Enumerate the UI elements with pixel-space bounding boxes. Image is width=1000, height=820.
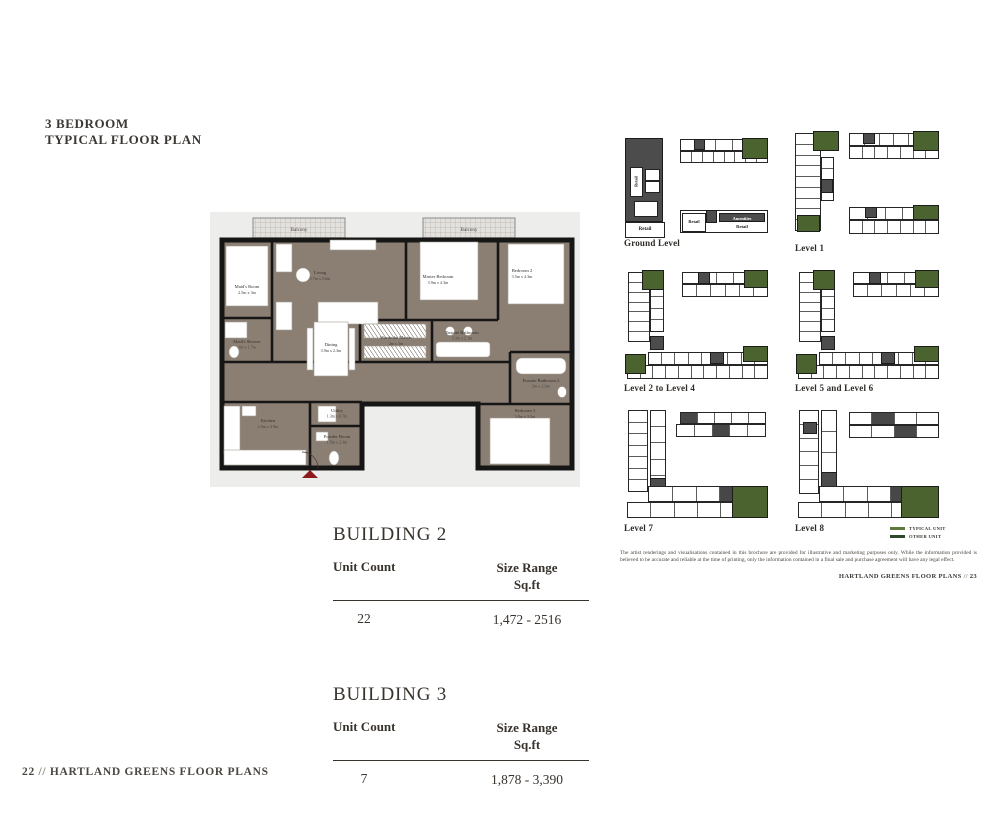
unit-cell: [683, 285, 697, 296]
unit-cell: [717, 366, 730, 378]
unit-cell: [800, 312, 820, 322]
unit-cell: [886, 208, 904, 219]
unit-cell: [901, 221, 914, 233]
ground-retail-label-1: Retail: [626, 227, 664, 232]
ground-tower-retail-label: Retail: [634, 170, 639, 194]
building2-rule: [333, 600, 589, 601]
unit-cell: [820, 353, 833, 364]
legend-row-other: OTHER UNIT: [890, 534, 946, 539]
level-label-5-6: Level 5 and Level 6: [795, 383, 873, 393]
unit-cell: [822, 320, 834, 331]
building2-unit-count-value: 22: [333, 611, 395, 628]
unit-cell: [822, 158, 833, 169]
unit-cell: [651, 411, 665, 427]
ground-tower: Retail: [625, 138, 663, 222]
building3-unit-count-value: 7: [333, 771, 395, 788]
building3-rule: [333, 760, 589, 761]
unit-cell: [629, 322, 649, 332]
unit-cell: [651, 297, 663, 309]
unit-cell: [800, 293, 820, 303]
ground-amenities-label: Amenities: [720, 216, 764, 221]
unit-cell: [882, 285, 896, 296]
unit-cell: [651, 309, 663, 321]
unit-cell: [711, 285, 725, 296]
unit-cell: [800, 480, 818, 493]
unit-cell: [822, 309, 834, 321]
unit-cell: [629, 457, 647, 469]
unit-cell: [717, 273, 734, 283]
unit-cell: [872, 426, 894, 437]
unit-cell: [822, 297, 834, 309]
unit-cell: [800, 322, 820, 332]
footer-text: HARTLAND GREENS FLOOR PLANS: [50, 766, 269, 778]
unit-cell: [681, 413, 698, 423]
ground-retail-label-2: Retail: [683, 219, 705, 224]
unit-cell: [714, 152, 725, 162]
level-label-8: Level 8: [795, 523, 824, 533]
building3-size-unit-label: Sq.ft: [514, 737, 540, 752]
building3-size-range-label: Size Range: [496, 720, 557, 735]
unit-cell: [649, 487, 673, 501]
level-diagram-2-4: Level 2 to Level 4: [622, 268, 774, 394]
unit-cell: [697, 487, 721, 501]
unit-cell: [894, 134, 909, 145]
unit-cell: [863, 147, 876, 158]
ground-retail-label-3: Retail: [719, 224, 765, 229]
level-label-2-4: Level 2 to Level 4: [624, 383, 695, 393]
unit-cell: [692, 366, 705, 378]
unit-cell: [850, 147, 863, 158]
unit-cell: [716, 140, 733, 150]
unit-cell: [888, 366, 901, 378]
unit-cell: [629, 480, 647, 491]
unit-cell: [698, 503, 721, 517]
unit-cell: [846, 503, 869, 517]
unit-cell: [629, 434, 647, 446]
unit-cell: [868, 487, 892, 501]
unit-cell: [748, 425, 765, 436]
unit-cell: [820, 487, 844, 501]
unit-cell: [800, 439, 818, 453]
unit-cell: [875, 221, 888, 233]
building3-title: BUILDING 3: [333, 684, 589, 706]
room-label-bedroom2: Bedroom 23.5m x 4.3m: [512, 268, 534, 279]
unit-cell: [649, 353, 662, 364]
unit-cell: [629, 423, 647, 435]
unit-cell: [854, 285, 868, 296]
unit-cell: [850, 366, 863, 378]
building3-size-range-value: 1,878 - 3,390: [465, 771, 589, 788]
unit-cell: [837, 366, 850, 378]
unit-cell: [800, 332, 820, 341]
unit-cell: [629, 293, 649, 303]
level-diagram-5-6: Level 5 and Level 6: [793, 268, 945, 394]
unit-cell: [850, 413, 872, 424]
unit-cell: [869, 503, 892, 517]
room-label-powder: Powder Room1.5m x 2.3m: [324, 434, 351, 445]
page-title: 3 BEDROOM TYPICAL FLOOR PLAN: [45, 116, 202, 148]
unit-cell: [673, 487, 697, 501]
legend-swatch-typical: [890, 527, 905, 530]
room-label-bedroom3: Bedroom 33.8m x 3.5m: [515, 408, 537, 419]
unit-cell: [860, 353, 873, 364]
building2-unit-count-label: Unit Count: [333, 559, 396, 593]
unit-cell: [917, 413, 938, 424]
unit-cell: [844, 487, 868, 501]
unit-cell: [675, 353, 688, 364]
unit-cell: [629, 332, 649, 341]
building2-size-unit-label: Sq.ft: [514, 577, 540, 592]
building2-size-range-value: 1,472 - 2516: [465, 611, 589, 628]
unit-cell: [822, 503, 845, 517]
unit-cell: [730, 425, 748, 436]
level-diagram-1: Level 1: [793, 131, 945, 253]
unit-cell: [651, 427, 665, 443]
page-ref-right-num: 23: [970, 573, 977, 580]
unit-cell: [863, 221, 876, 233]
unit-cell: [713, 425, 731, 436]
unit-cell: [653, 366, 666, 378]
legend-row-typical: TYPICAL UNIT: [890, 526, 946, 531]
unit-cell: [897, 285, 911, 296]
unit-cell: [666, 366, 679, 378]
unit-cell: [800, 466, 818, 480]
unit-cell: [833, 353, 846, 364]
unit-cell: [677, 425, 695, 436]
building3-unit-count-label: Unit Count: [333, 719, 396, 753]
unit-cell: [692, 152, 703, 162]
unit-cell: [629, 469, 647, 481]
unit-cell: [651, 460, 665, 476]
ground-retail-strip: Retail Amenities Retail: [680, 210, 768, 233]
unit-cell: [628, 503, 651, 517]
legend: TYPICAL UNIT OTHER UNIT: [890, 526, 946, 542]
unit-cell: [888, 273, 905, 283]
page-ref-right-text: HARTLAND GREENS FLOOR PLANS: [839, 573, 962, 580]
unit-cell: [796, 166, 820, 177]
unit-cell: [749, 413, 765, 423]
level-diagram-8: Level 8: [793, 408, 945, 534]
unit-cell: [822, 411, 836, 432]
unit-cell: [888, 147, 901, 158]
unit-cell: [796, 199, 820, 210]
unit-cell: [728, 353, 741, 364]
unit-cell: [914, 221, 927, 233]
level-label-1: Level 1: [795, 243, 824, 253]
footer-sep: //: [38, 766, 46, 778]
page-title-line1: 3 BEDROOM: [45, 116, 202, 132]
unit-cell: [675, 503, 698, 517]
floor-plan: Balcony Balcony: [210, 212, 580, 487]
page-ref-right: HARTLAND GREENS FLOOR PLANS // 23: [620, 573, 977, 580]
level-label-7: Level 7: [624, 523, 653, 533]
balcony-left-label: Balcony: [291, 228, 308, 233]
level8-typical-unit: [901, 486, 939, 518]
unit-cell: [901, 147, 914, 158]
unit-cell: [743, 366, 756, 378]
unit-cell: [899, 353, 912, 364]
legend-swatch-other: [890, 535, 905, 538]
unit-cell: [926, 221, 938, 233]
building3-section: BUILDING 3 Unit Count Size Range Sq.ft 7…: [333, 684, 589, 788]
unit-cell: [901, 366, 914, 378]
footer-page-ref: 22 // HARTLAND GREENS FLOOR PLANS: [22, 766, 269, 778]
unit-cell: [695, 425, 713, 436]
unit-cell: [715, 413, 732, 423]
unit-cell: [875, 366, 888, 378]
legend-label-typical: TYPICAL UNIT: [909, 526, 946, 531]
unit-cell: [726, 285, 740, 296]
unit-cell: [629, 303, 649, 313]
unit-cell: [800, 452, 818, 466]
unit-cell: [651, 320, 663, 331]
unit-cell: [824, 366, 837, 378]
unit-cell: [629, 446, 647, 458]
unit-cell: [822, 169, 833, 180]
unit-cell: [800, 303, 820, 313]
unit-cell: [914, 366, 927, 378]
unit-cell: [895, 413, 917, 424]
unit-cell: [875, 147, 888, 158]
unit-cell: [846, 353, 859, 364]
unit-cell: [703, 152, 714, 162]
unit-cell: [730, 366, 743, 378]
unit-cell: [799, 503, 822, 517]
level7-typical-unit: [732, 486, 768, 518]
unit-cell: [796, 156, 820, 167]
brochure-page: 3 BEDROOM TYPICAL FLOOR PLAN Balcony Bal…: [0, 0, 1000, 820]
unit-cell: [698, 413, 715, 423]
unit-cell: [796, 177, 820, 188]
unit-cell: [681, 152, 692, 162]
unit-cell: [850, 426, 872, 437]
building2-section: BUILDING 2 Unit Count Size Range Sq.ft 2…: [333, 524, 589, 628]
unit-cell: [872, 413, 894, 424]
unit-cell: [917, 426, 938, 437]
unit-cell: [697, 285, 711, 296]
unit-cell: [796, 188, 820, 199]
unit-cell: [888, 221, 901, 233]
level-label-ground: Ground Level: [624, 238, 680, 248]
unit-cell: [895, 426, 917, 437]
unit-cell: [880, 134, 895, 145]
unit-cell: [732, 413, 749, 423]
unit-cell: [689, 353, 702, 364]
balcony-right-label: Balcony: [461, 228, 478, 233]
balcony-right: Balcony: [423, 218, 515, 240]
unit-cell: [679, 366, 692, 378]
unit-cell: [651, 443, 665, 459]
unit-cell: [662, 353, 675, 364]
unit-cell: [755, 366, 767, 378]
unit-cell: [822, 453, 836, 474]
building2-size-range-label: Size Range: [496, 560, 557, 575]
page-ref-right-sep: //: [964, 573, 968, 580]
ground-typical-unit: [742, 138, 768, 159]
level-diagram-ground: Retail Retail Retail Amenities Retail Gr…: [622, 138, 772, 253]
balcony-left: Balcony: [253, 218, 345, 240]
footer-page-num: 22: [22, 766, 35, 778]
unit-cell: [822, 432, 836, 453]
unit-cell: [629, 411, 647, 423]
level-diagram-7: Level 7: [622, 408, 774, 534]
unit-cell: [704, 366, 717, 378]
legend-label-other: OTHER UNIT: [909, 534, 941, 539]
disclaimer-text: The artist renderings and visualisations…: [620, 550, 977, 564]
unit-cell: [868, 285, 882, 296]
unit-cell: [651, 503, 674, 517]
unit-cell: [850, 221, 863, 233]
unit-cell: [926, 366, 938, 378]
unit-cell: [725, 152, 736, 162]
unit-cell: [863, 366, 876, 378]
building2-title: BUILDING 2: [333, 524, 589, 546]
unit-cell: [629, 312, 649, 322]
page-title-line2: TYPICAL FLOOR PLAN: [45, 132, 202, 148]
